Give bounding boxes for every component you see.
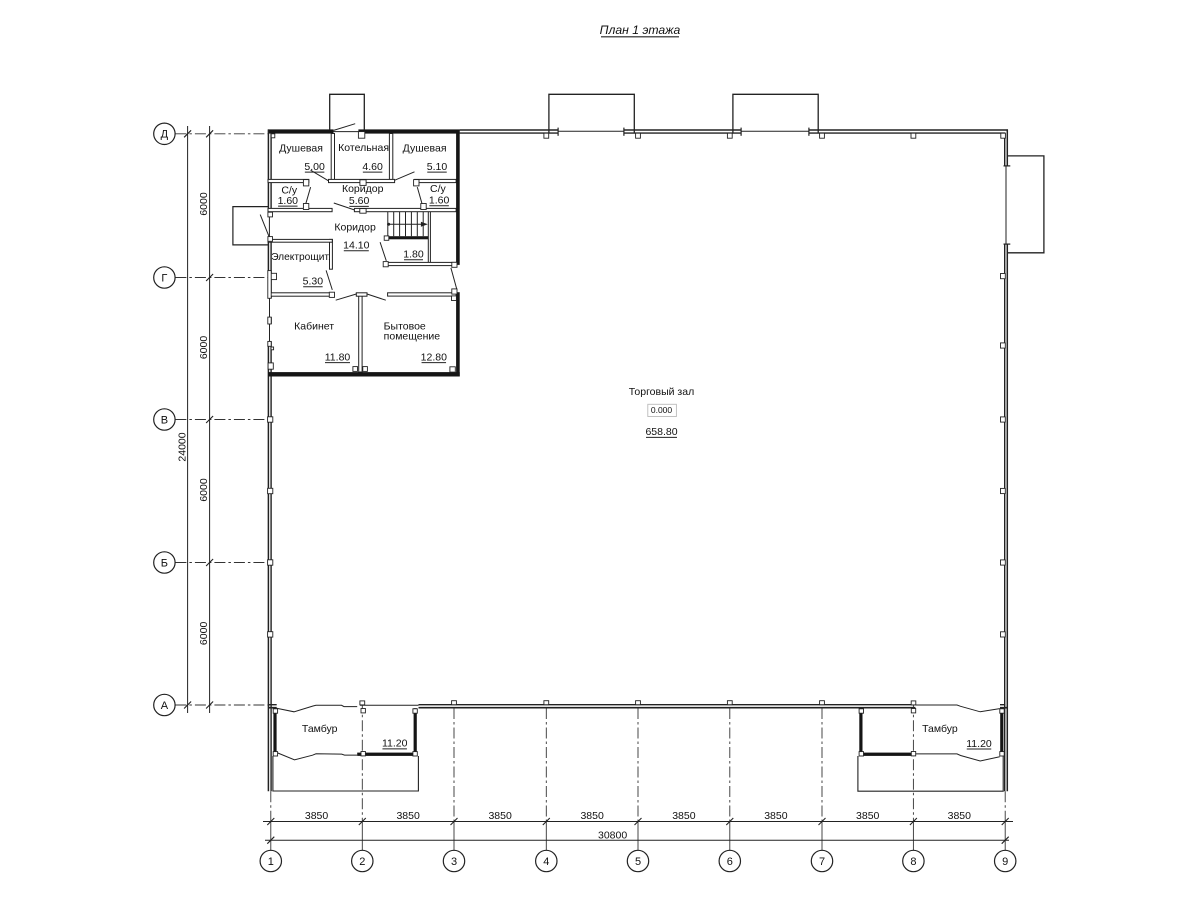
svg-text:8: 8 [910,856,916,868]
svg-text:2: 2 [359,856,365,868]
svg-text:Тамбур: Тамбур [922,723,958,735]
svg-text:3850: 3850 [580,810,604,822]
svg-text:5.60: 5.60 [349,195,370,207]
svg-text:7: 7 [819,856,825,868]
svg-text:Коридор: Коридор [342,183,384,195]
svg-text:11.80: 11.80 [325,351,351,363]
svg-text:Душевая: Душевая [403,142,447,154]
svg-text:4: 4 [543,856,549,868]
svg-text:6000: 6000 [198,622,210,646]
svg-text:24000: 24000 [176,432,188,461]
svg-text:11.20: 11.20 [382,738,408,750]
svg-text:Тамбур: Тамбур [302,723,338,735]
svg-text:В: В [161,414,168,426]
svg-text:6000: 6000 [198,336,210,360]
svg-text:6000: 6000 [198,478,210,502]
svg-text:1: 1 [268,856,274,868]
svg-text:Котельная: Котельная [338,142,389,154]
svg-text:Электрощит.: Электрощит. [271,252,331,263]
svg-text:Кабинет: Кабинет [294,321,334,333]
svg-text:3850: 3850 [488,810,512,822]
svg-text:Г: Г [161,272,167,284]
svg-text:658.80: 658.80 [645,426,677,438]
svg-text:3850: 3850 [672,810,696,822]
svg-text:Коридор: Коридор [334,222,376,234]
svg-text:1.80: 1.80 [403,249,424,261]
svg-text:11.20: 11.20 [966,738,992,750]
svg-text:12.80: 12.80 [421,351,447,363]
svg-text:3850: 3850 [764,810,788,822]
svg-text:1.60: 1.60 [278,195,299,207]
svg-text:5.10: 5.10 [427,161,448,173]
svg-text:Д: Д [161,129,169,141]
svg-text:3850: 3850 [856,810,880,822]
svg-text:0.000: 0.000 [651,405,673,415]
svg-text:5.00: 5.00 [304,161,325,173]
svg-text:План 1 этажа: План 1 этажа [600,23,681,37]
svg-text:3850: 3850 [948,810,972,822]
svg-text:6000: 6000 [198,192,210,216]
svg-text:3850: 3850 [396,810,420,822]
svg-text:30800: 30800 [598,830,627,842]
svg-text:9: 9 [1002,856,1008,868]
svg-text:1.60: 1.60 [429,195,450,207]
svg-text:3850: 3850 [305,810,329,822]
svg-text:А: А [161,700,169,712]
svg-text:5: 5 [635,856,641,868]
svg-text:5.30: 5.30 [303,276,324,288]
svg-text:6: 6 [727,856,733,868]
svg-text:Б: Б [161,557,168,569]
svg-text:Торговый зал: Торговый зал [629,386,694,398]
svg-text:4.60: 4.60 [362,161,383,173]
svg-text:14.10: 14.10 [343,240,369,252]
svg-text:Душевая: Душевая [279,143,323,155]
svg-text:помещение: помещение [384,330,441,342]
svg-text:3: 3 [451,856,457,868]
svg-text:С/у: С/у [430,183,447,195]
